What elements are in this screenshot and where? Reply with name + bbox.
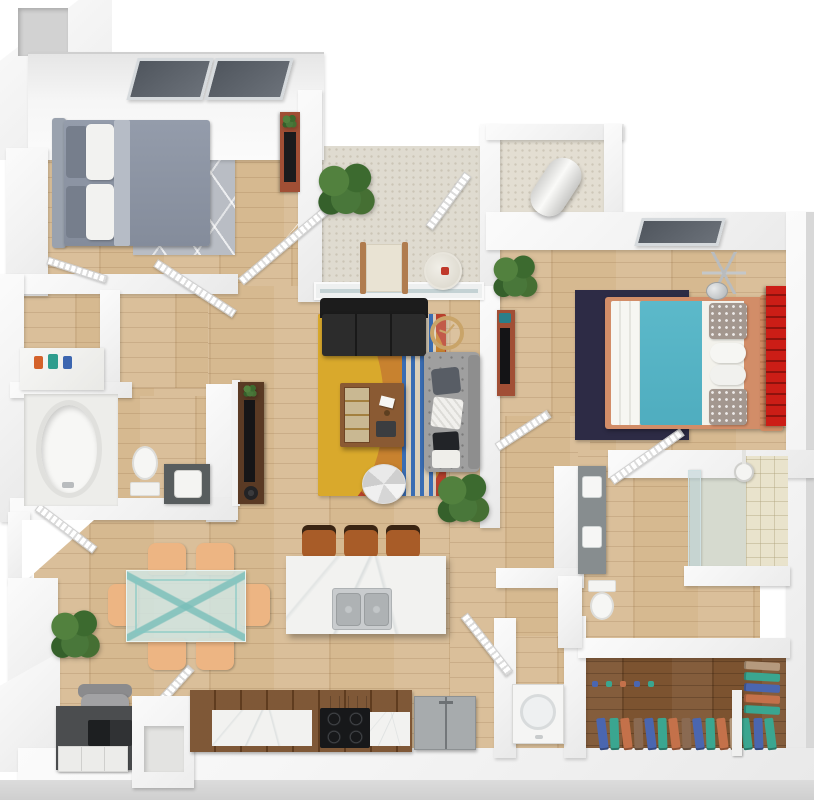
- hanging-garment: [744, 694, 780, 704]
- pillow-white-1: [86, 124, 114, 180]
- pillow-pattern-1: [709, 303, 747, 339]
- dining-chair-bottom2: [196, 638, 234, 670]
- hook-item: [592, 681, 598, 687]
- tub-ledge-master: [684, 566, 790, 586]
- sofa-black: [320, 298, 428, 356]
- bar-stool-3: [386, 530, 420, 558]
- refrigerator: [414, 696, 476, 750]
- bed-master: [605, 295, 783, 431]
- hanging-garment: [681, 718, 691, 750]
- foot-blanket-white: [611, 301, 641, 425]
- red-wall-art: [766, 286, 786, 426]
- teal-decor: [499, 313, 511, 323]
- plant-master: [492, 252, 538, 302]
- closet-top-hooks: [592, 674, 682, 682]
- table-shelf-unit: [344, 387, 370, 443]
- bar-stool-2: [344, 530, 378, 558]
- tripod-floor-lamp: [702, 252, 746, 294]
- hanging-garment: [744, 672, 780, 682]
- tv-console: [238, 382, 264, 504]
- wall-left-outer-mid: [0, 274, 24, 522]
- pillow-accent-1: [66, 126, 88, 178]
- hanging-garment: [692, 718, 705, 751]
- pillow-pattern-2: [709, 389, 747, 425]
- tv-living: [244, 400, 255, 482]
- wall-right-outer-edge: [806, 212, 814, 758]
- tub-faucet: [62, 482, 74, 488]
- console-speaker: [244, 486, 258, 500]
- wall-bath1-left-lower: [558, 576, 582, 648]
- floor-plan-canvas: [0, 0, 814, 800]
- vanity-master: [578, 466, 606, 574]
- hanging-garment: [668, 718, 681, 751]
- hanging-garment: [716, 718, 729, 751]
- wall-bath1-closet-divider: [578, 638, 790, 658]
- dining-chair-bottom1: [148, 638, 186, 670]
- roof-window-1: [126, 58, 213, 100]
- chair-arm-right: [402, 242, 408, 294]
- kitchen-island: [286, 556, 446, 634]
- dresser-bedroom2: [280, 112, 300, 192]
- plant-patio: [316, 160, 376, 220]
- hanging-garment: [657, 718, 667, 750]
- sink-basin-right: [364, 593, 389, 626]
- vanity-sink-1: [582, 476, 602, 498]
- hanging-garment: [744, 683, 780, 693]
- table-knob: [384, 410, 390, 416]
- tv-master: [500, 328, 510, 384]
- nook-inset: [18, 8, 68, 56]
- table-tray: [376, 421, 396, 437]
- washer-lid: [520, 694, 556, 730]
- shower-head-arm: [742, 450, 746, 464]
- sink-basin-bath2: [174, 470, 202, 498]
- table-papers: [379, 395, 395, 408]
- storage-organizer: [58, 746, 128, 772]
- shower-head: [734, 462, 754, 482]
- hook-item: [634, 681, 640, 687]
- patio-chair: [360, 242, 408, 294]
- coffee-table: [340, 383, 404, 447]
- hanging-garment: [609, 718, 619, 750]
- loveseat-pillow-white: [432, 450, 460, 468]
- sofa-seat: [322, 314, 426, 356]
- bottle-blue: [63, 356, 72, 369]
- hanging-garment: [744, 661, 780, 671]
- roof-window-2: [204, 58, 293, 100]
- hanging-garment: [744, 705, 780, 715]
- wall-clock: [430, 316, 464, 350]
- wall-hall-bath1: [554, 466, 580, 578]
- pillow-white-2: [86, 184, 114, 240]
- foundation-edge: [0, 780, 814, 800]
- laptop: [88, 720, 132, 746]
- pillow-accent-2: [66, 186, 88, 238]
- patio-table: [424, 252, 462, 290]
- hanging-garment: [596, 718, 609, 751]
- washer-dial: [535, 735, 543, 739]
- double-sink: [332, 588, 392, 630]
- hook-item: [606, 681, 612, 687]
- plant-dresser-icon: [282, 114, 297, 129]
- fridge-handles: [439, 701, 453, 704]
- chair-seat: [366, 244, 402, 292]
- pass-through-counter: [132, 696, 194, 788]
- media-dresser-master: [497, 310, 515, 396]
- bottle-white: [78, 358, 84, 369]
- cooktop: [320, 708, 370, 748]
- loveseat-gray: [424, 352, 480, 472]
- sink-basin-left: [336, 593, 361, 626]
- bed-bedroom2: [52, 118, 210, 248]
- loveseat-throw-white: [430, 396, 463, 429]
- toiletry-counter: [20, 348, 104, 390]
- sink-cabinet-bath2: [164, 464, 210, 504]
- closet-shelf-divider: [732, 690, 742, 756]
- vanity-sink-2: [582, 526, 602, 548]
- kitchen-counter-run: [190, 690, 412, 752]
- washer: [512, 684, 564, 744]
- bar-stool-1: [302, 530, 336, 558]
- loveseat-pillow-gray: [431, 367, 462, 396]
- hanging-garment: [705, 718, 715, 750]
- counter-marble-left: [212, 710, 312, 746]
- table-inner-frame: [135, 579, 237, 633]
- hook-item: [620, 681, 626, 687]
- hanging-garment: [620, 718, 633, 751]
- toilet-bowl-master: [590, 592, 614, 620]
- roof-window-master: [634, 218, 726, 246]
- plant-living: [436, 470, 490, 528]
- hanging-garment: [633, 718, 643, 750]
- shower-glass: [688, 470, 701, 576]
- toilet-tank-master: [588, 580, 616, 592]
- floor-bath2-closet: [120, 292, 208, 388]
- pillow-roll-2: [710, 365, 746, 385]
- plant-dining: [50, 606, 100, 664]
- toilet-tank: [130, 482, 160, 496]
- loveseat-back: [468, 355, 480, 469]
- counter-notch: [144, 726, 184, 772]
- toilet-master: [588, 580, 618, 622]
- toilet-bath2: [130, 446, 160, 496]
- table-red-item: [441, 267, 449, 275]
- dining-table-glass: [126, 570, 246, 642]
- counter-marble-right: [370, 712, 410, 746]
- bottle-teal: [48, 354, 58, 369]
- toilet-bowl: [132, 446, 158, 480]
- hook-item: [648, 681, 654, 687]
- plant-console-icon: [243, 384, 257, 398]
- hanging-garment: [644, 718, 657, 751]
- tv-bedroom2: [284, 132, 296, 182]
- bottle-orange: [34, 356, 43, 369]
- duvet-teal: [640, 301, 704, 425]
- clothes-rack-right: [744, 662, 786, 728]
- ottoman-round: [362, 464, 406, 504]
- blanket-fold: [114, 120, 130, 246]
- pillow-roll-1: [710, 343, 746, 363]
